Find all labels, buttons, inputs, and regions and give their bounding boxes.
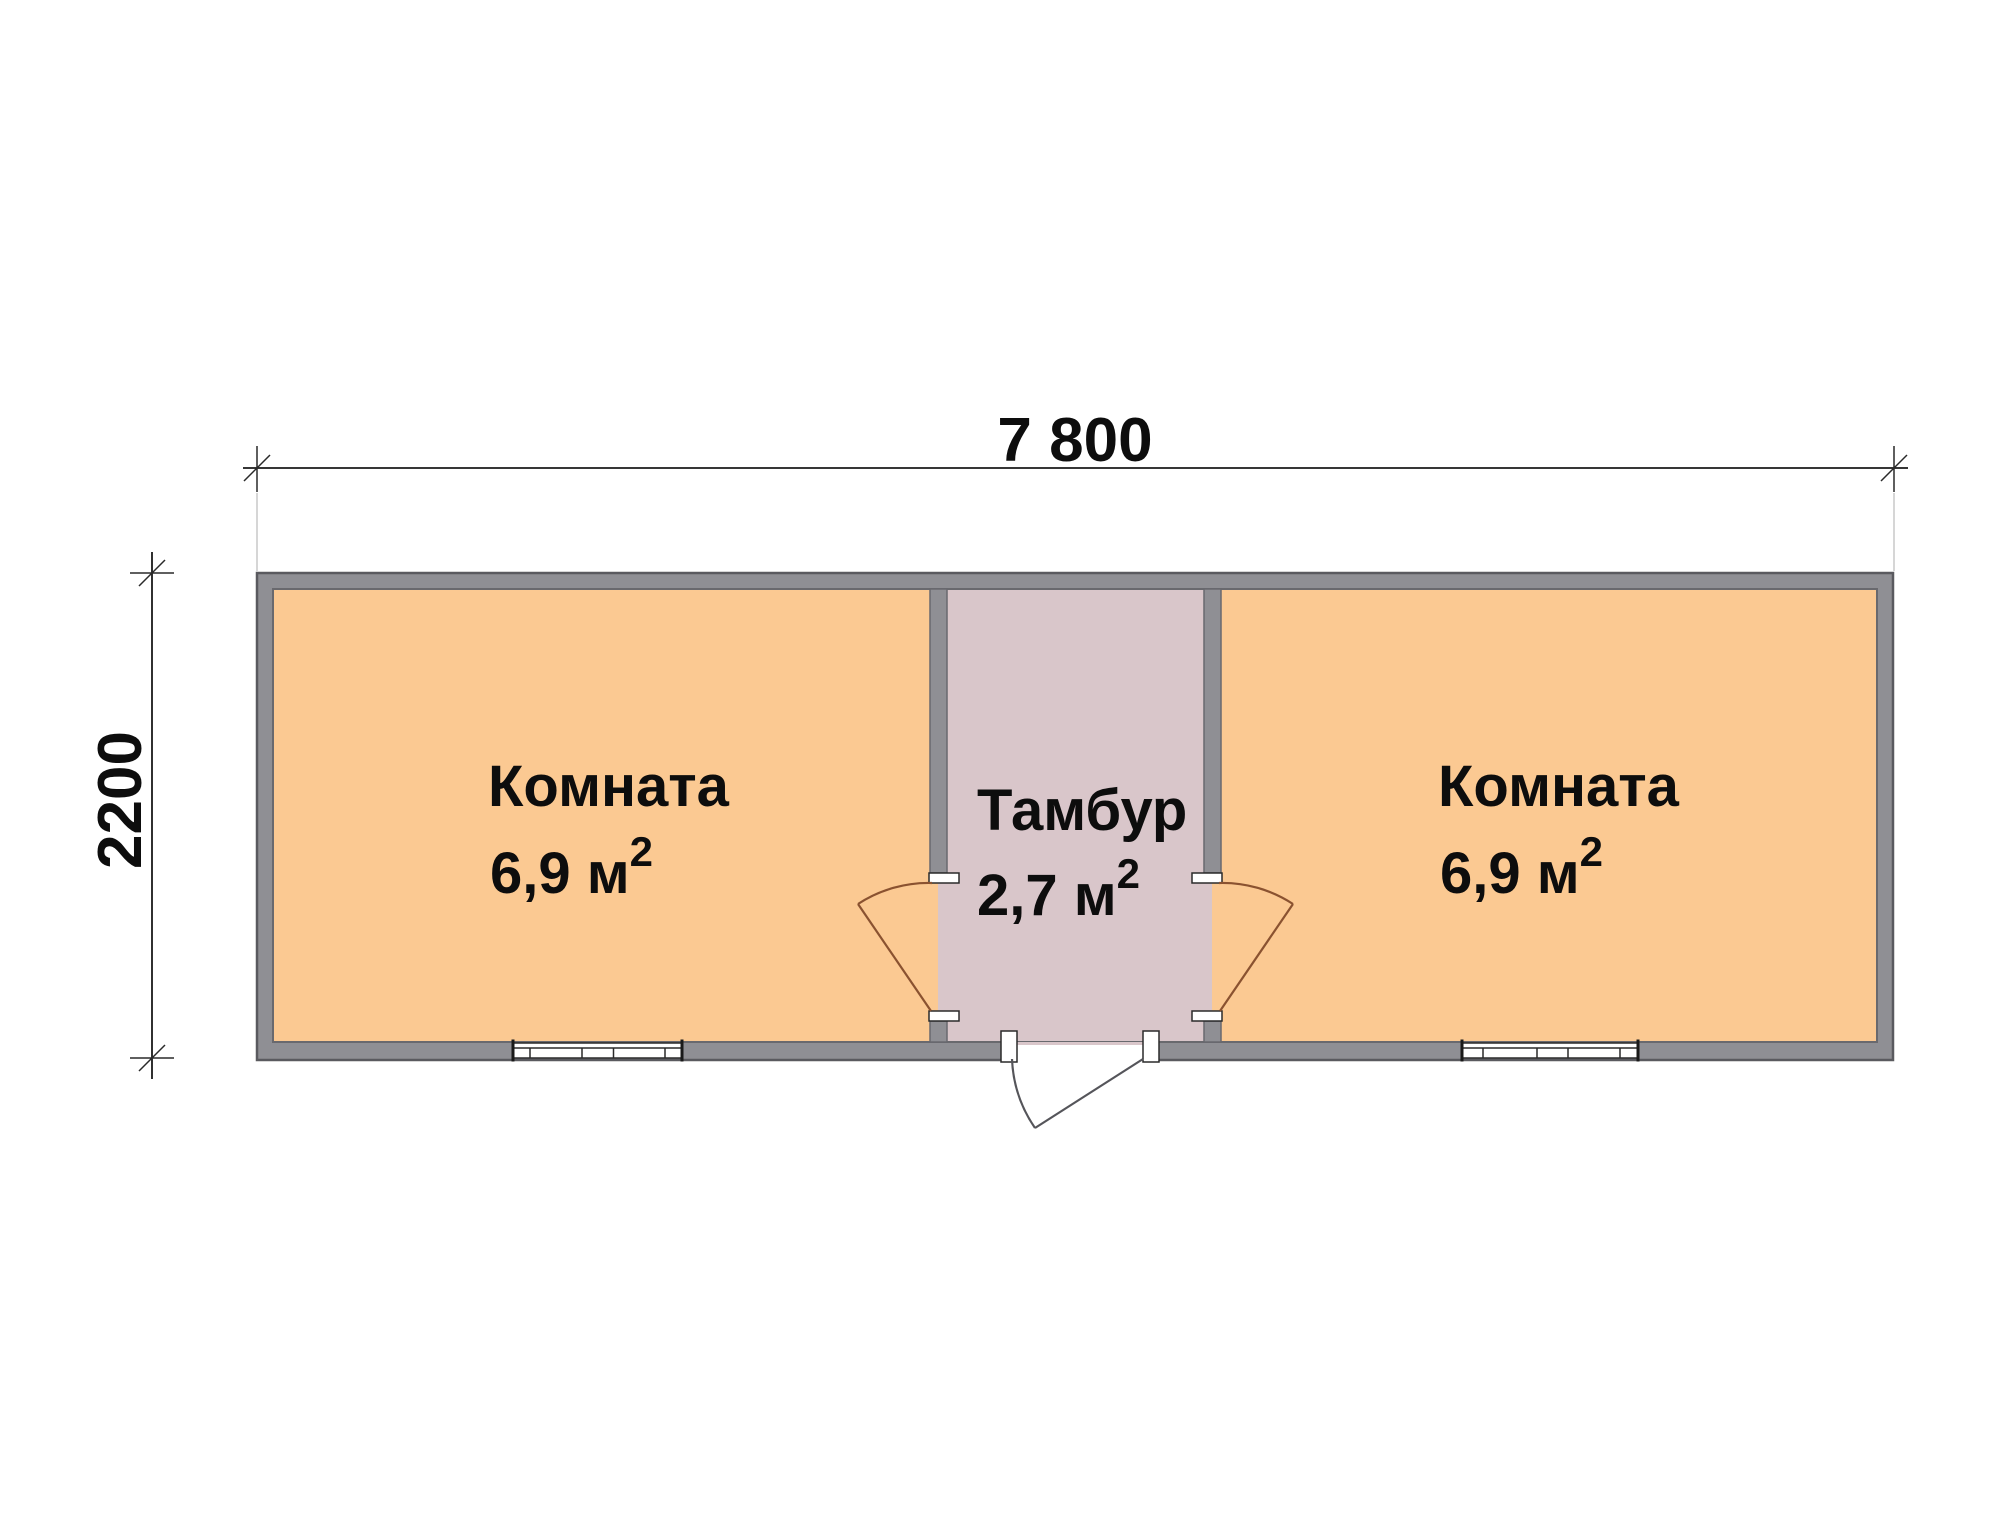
door-jamb-left-bottom <box>929 1011 959 1021</box>
room-left-name: Комната <box>488 754 730 819</box>
partition-right-lower <box>1204 1021 1221 1042</box>
dimension-label-left: 2200 <box>86 731 155 869</box>
vestibule-area-value: 2,7 м <box>977 863 1117 928</box>
door-jamb-right-bottom <box>1192 1011 1222 1021</box>
dimension-label-top: 7 800 <box>997 406 1152 475</box>
door-swing-entrance <box>1012 1059 1143 1128</box>
room-right-area-value: 6,9 м <box>1440 841 1580 906</box>
floor-plan-page: 7 800 2200 Комната 6,9 м2 Тамбур 2,7 м2 … <box>0 0 2000 1538</box>
vestibule-name: Тамбур <box>977 778 1187 843</box>
window-left <box>513 1043 682 1058</box>
room-left-area-sup: 2 <box>630 828 653 875</box>
room-right-name: Комната <box>1438 754 1680 819</box>
door-jamb-entrance-right <box>1143 1031 1159 1062</box>
partition-right-upper <box>1204 589 1221 873</box>
floor-plan-drawing: 7 800 2200 Комната 6,9 м2 Тамбур 2,7 м2 … <box>0 0 2000 1538</box>
entrance-threshold-strip <box>1017 1042 1143 1045</box>
partition-left-upper <box>930 589 947 873</box>
dimension-left: 2200 <box>86 552 174 1079</box>
vestibule-area-sup: 2 <box>1117 850 1140 897</box>
door-jamb-right-top <box>1192 873 1222 883</box>
room-left-area-value: 6,9 м <box>490 841 630 906</box>
room-right-area-sup: 2 <box>1580 828 1603 875</box>
partition-left-lower <box>930 1021 947 1042</box>
dimension-top-extension-lines <box>257 493 1894 571</box>
door-jamb-left-top <box>929 873 959 883</box>
door-jamb-entrance-left <box>1001 1031 1017 1062</box>
window-right <box>1462 1043 1638 1058</box>
entrance-opening <box>1017 1045 1143 1063</box>
dimension-top: 7 800 <box>243 406 1908 571</box>
